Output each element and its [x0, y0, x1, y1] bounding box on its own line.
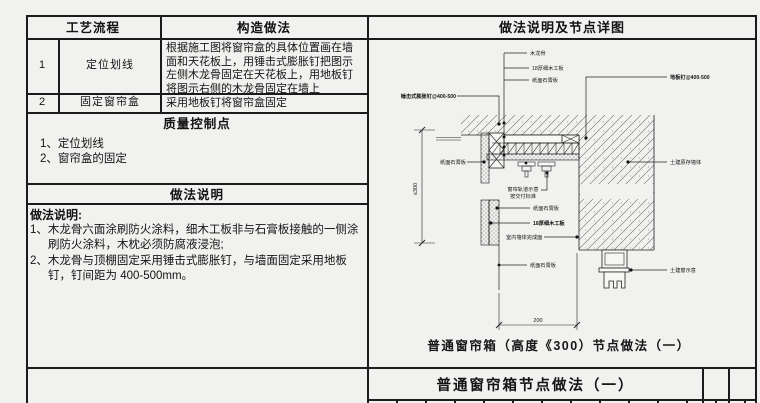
civil-window-profile [599, 250, 629, 288]
col-header-method: 构造做法 [161, 15, 367, 38]
label-wood-keel: 木龙骨 [530, 49, 546, 57]
label-blockboard-2: 18厚细木工板 [533, 219, 566, 227]
notes-header: 做法说明 [26, 183, 368, 203]
gypsum-band [487, 154, 579, 160]
curtain-track-b [538, 162, 555, 177]
quality-item: 1、定位划线 [40, 137, 360, 152]
quality-items: 1、定位划线 2、窗帘盒的固定 [40, 137, 360, 181]
label-gypsum-board-3: 纸面石膏板 [530, 261, 557, 269]
blockboard-section-zigzag [492, 143, 579, 154]
label-civil-window: 土建窗示意 [670, 266, 696, 274]
notes-item: 1、木龙骨六面涂刷防火涂料，细木工板非与石膏板接触的一侧涂刷防火涂料，木枕必须防… [30, 223, 364, 253]
lower-gypsum-strip [481, 200, 489, 245]
label-floor-nail: 地板钉@400-500 [670, 73, 710, 81]
dimension-horizontal-value: 200 [533, 318, 542, 324]
row1-name: 定位划线 [60, 39, 160, 93]
quality-item: 2、窗帘盒的固定 [40, 152, 360, 167]
detail-drawing: 木龙骨 18厚细木工板 纸面石膏板 地板钉@400-500 锤击式膨胀钉@400… [367, 38, 755, 367]
quality-header: 质量控制点 [26, 112, 368, 133]
dimension-vertical-value: ≤300 [413, 183, 419, 195]
row2-number: 2 [26, 94, 58, 112]
line-notes-header-bottom [26, 203, 368, 205]
label-gypsum-board-2: 纸面石膏板 [533, 204, 560, 212]
label-gypsum-board: 纸面石膏板 [532, 76, 559, 84]
label-blockboard: 18厚细木工板 [532, 64, 565, 72]
existing-wall-hatch [579, 115, 654, 250]
notes-item: 2、木龙骨与顶棚固定采用锤击式膨胀钉，与墙面固定采用地板钉，钉间距为 400-5… [30, 254, 364, 284]
label-track-note-line1: 窗帘轨道示意 [507, 185, 538, 193]
label-existing-wall: 土建原存墙体 [670, 158, 702, 166]
diagram-caption: 普通窗帘箱（高度《300）节点做法（一） [427, 338, 690, 353]
ceiling-slab-hatch [461, 115, 579, 135]
notes-heading: 做法说明: [30, 207, 364, 223]
col-header-process: 工艺流程 [26, 15, 160, 38]
row1-number: 1 [26, 39, 58, 93]
row2-name: 固定窗帘盒 [60, 94, 160, 112]
drawing-sheet: 工艺流程 构造做法 1 定位划线 根据施工图将窗帘盒的具体位置画在墙面和天花板上… [0, 0, 760, 403]
row2-desc: 采用地板钉将窗帘盒固定 [161, 94, 367, 112]
notes-body: 做法说明: 1、木龙骨六面涂刷防火涂料，细木工板非与石膏板接触的一侧涂刷防火涂料… [30, 207, 364, 365]
label-interior-wall-finish: 室内墙体完成面 [506, 233, 542, 241]
sheet-title: 普通窗帘箱节点做法（一） [369, 369, 702, 399]
wood-keel-column [489, 133, 504, 168]
label-gypsum-board-left: 纸面石膏板 [440, 158, 467, 166]
label-track-note-line2: 按交付标准 [510, 192, 536, 200]
right-panel-header: 做法说明及节点详图 [369, 15, 755, 38]
line-titleblock-cell-2 [728, 367, 730, 403]
line-titleblock-cell-1 [702, 367, 704, 403]
left-upper-strip [481, 133, 489, 183]
row1-desc: 根据施工图将窗帘盒的具体位置画在墙面和天花板上，用锤击式膨胀钉把图示左侧木龙骨固… [161, 39, 367, 93]
label-expansion-nail: 锤击式膨胀钉@400-500 [401, 92, 456, 100]
border-right [755, 15, 757, 403]
